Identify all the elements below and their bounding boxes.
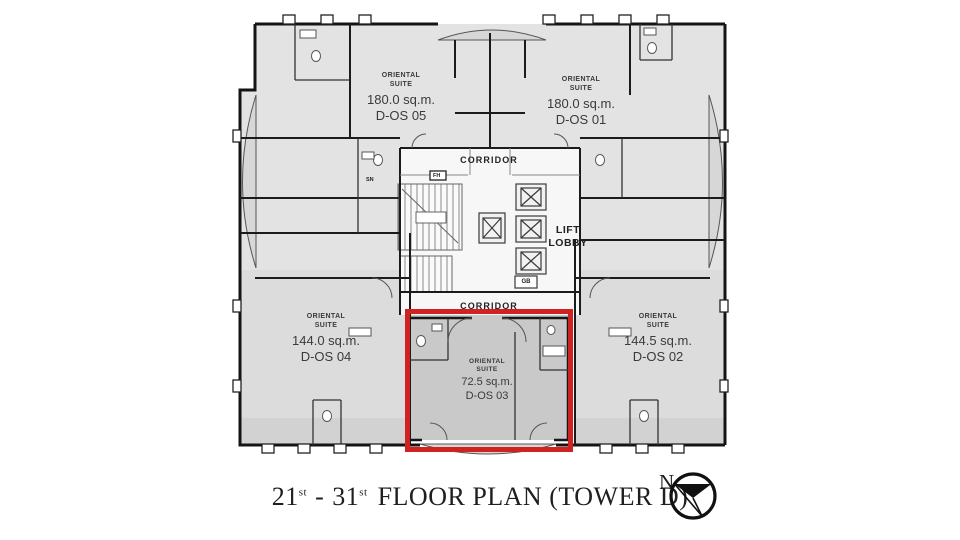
lift-lobby-label: LIFT LOBBY [542, 224, 594, 249]
caption-text: FLOOR PLAN (TOWER D) [378, 482, 689, 511]
unit-name: ORIENTAL SUITE [373, 72, 429, 90]
unit-label-d-os-04: ORIENTAL SUITE 144.0 sq.m. D-OS 04 [292, 313, 360, 365]
stairs [398, 184, 462, 292]
unit-name: ORIENTAL SUITE [630, 313, 686, 331]
sn-label: SN [366, 177, 374, 183]
caption-floor-start-sup: st [299, 486, 307, 498]
unit-name: ORIENTAL SUITE [553, 76, 609, 94]
unit-label-d-os-01: ORIENTAL SUITE 180.0 sq.m. D-OS 01 [547, 76, 615, 128]
unit-code: D-OS 05 [367, 108, 435, 124]
unit-label-d-os-05: ORIENTAL SUITE 180.0 sq.m. D-OS 05 [367, 72, 435, 124]
unit-code: D-OS 01 [547, 112, 615, 128]
highlight-box-d-os-03[interactable] [405, 309, 573, 452]
unit-code: D-OS 02 [624, 349, 692, 365]
unit-code: D-OS 04 [292, 349, 360, 365]
caption-floor-start: 21 [272, 482, 299, 511]
caption-floor-end: 31 [332, 482, 359, 511]
unit-name: ORIENTAL SUITE [298, 313, 354, 331]
caption: 21st-31stFLOOR PLAN (TOWER D) [0, 482, 960, 512]
caption-separator: - [315, 482, 324, 511]
floor-plan-page: ORIENTAL SUITE 180.0 sq.m. D-OS 05 ORIEN… [0, 0, 960, 540]
gb-label: GB [516, 279, 536, 285]
north-compass-icon [658, 464, 728, 534]
unit-label-d-os-02: ORIENTAL SUITE 144.5 sq.m. D-OS 02 [624, 313, 692, 365]
floor-plan-drawing [0, 0, 960, 540]
unit-area: 144.0 sq.m. [292, 333, 360, 349]
caption-floor-end-sup: st [359, 486, 367, 498]
unit-area: 144.5 sq.m. [624, 333, 692, 349]
unit-area: 180.0 sq.m. [547, 96, 615, 112]
corridor-label-top: CORRIDOR [460, 155, 518, 165]
unit-area: 180.0 sq.m. [367, 92, 435, 108]
fh-label: FH [433, 173, 440, 179]
